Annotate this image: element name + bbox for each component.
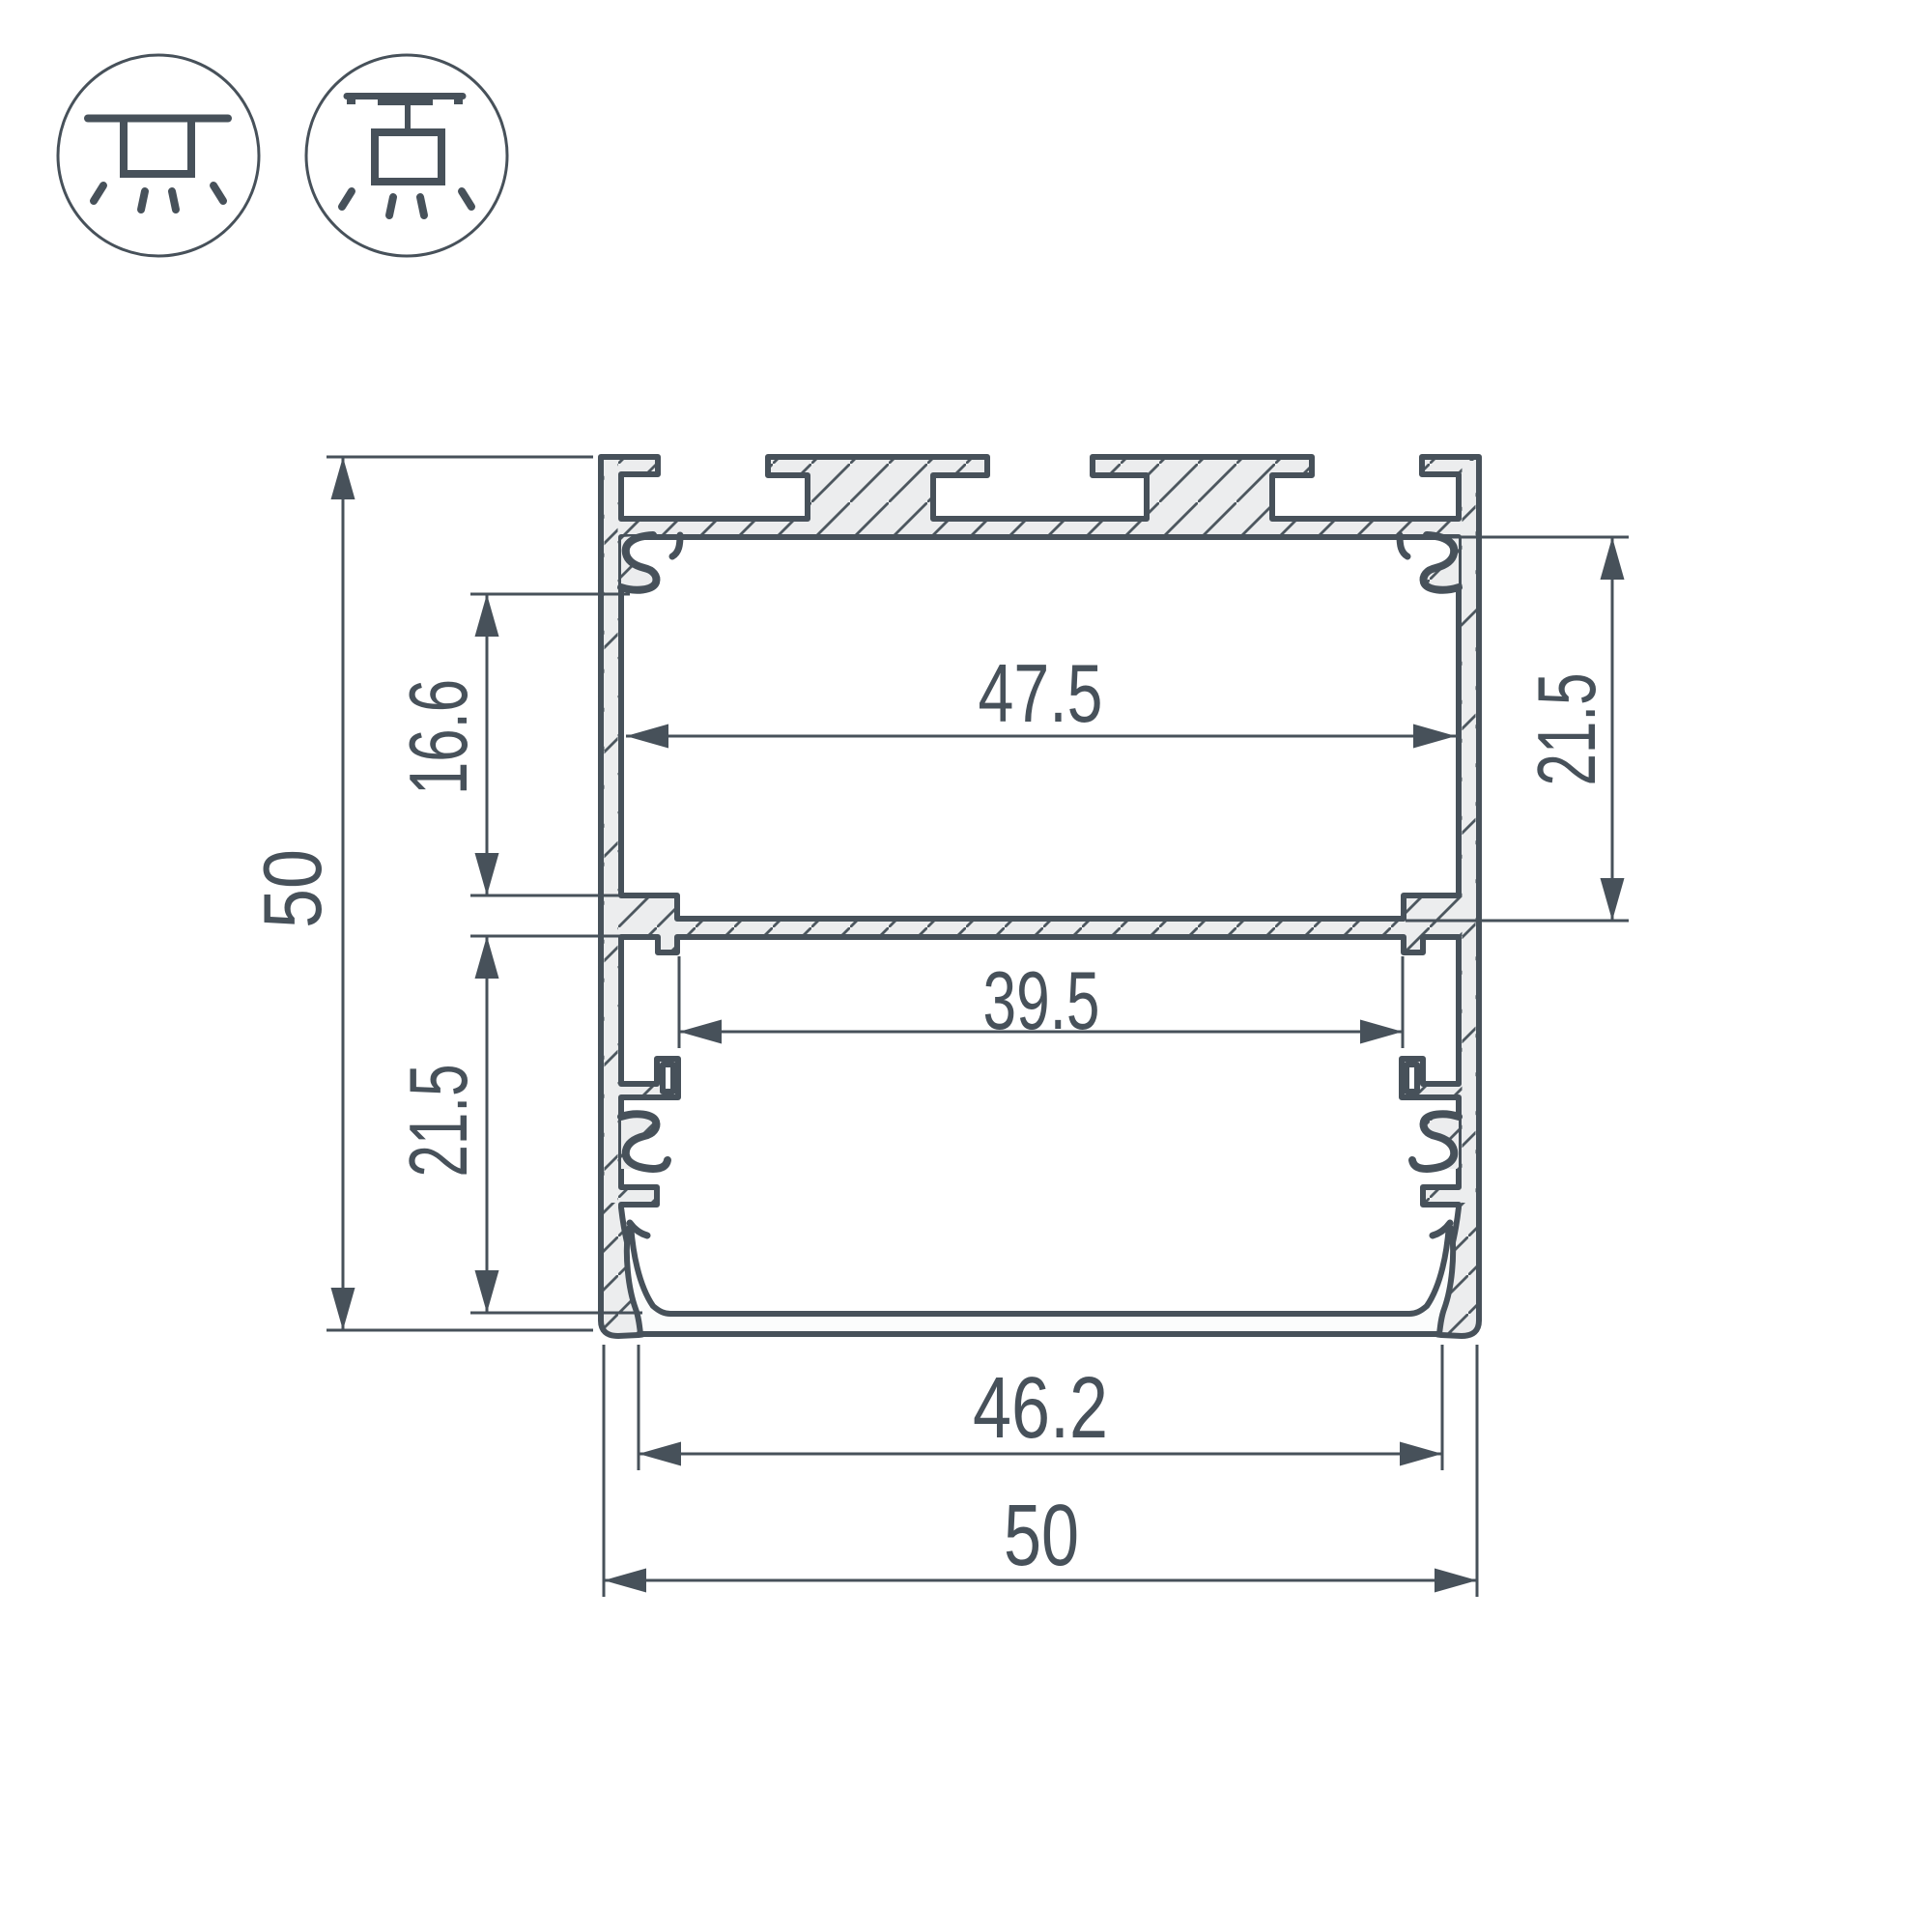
svg-text:21.5: 21.5	[393, 1065, 485, 1178]
svg-text:21.5: 21.5	[1521, 673, 1613, 786]
svg-text:47.5: 47.5	[979, 648, 1103, 740]
svg-text:16.6: 16.6	[393, 679, 485, 795]
svg-text:46.2: 46.2	[973, 1360, 1108, 1457]
svg-text:39.5: 39.5	[983, 955, 1100, 1047]
svg-text:50: 50	[1004, 1488, 1079, 1584]
svg-text:50: 50	[247, 849, 339, 928]
